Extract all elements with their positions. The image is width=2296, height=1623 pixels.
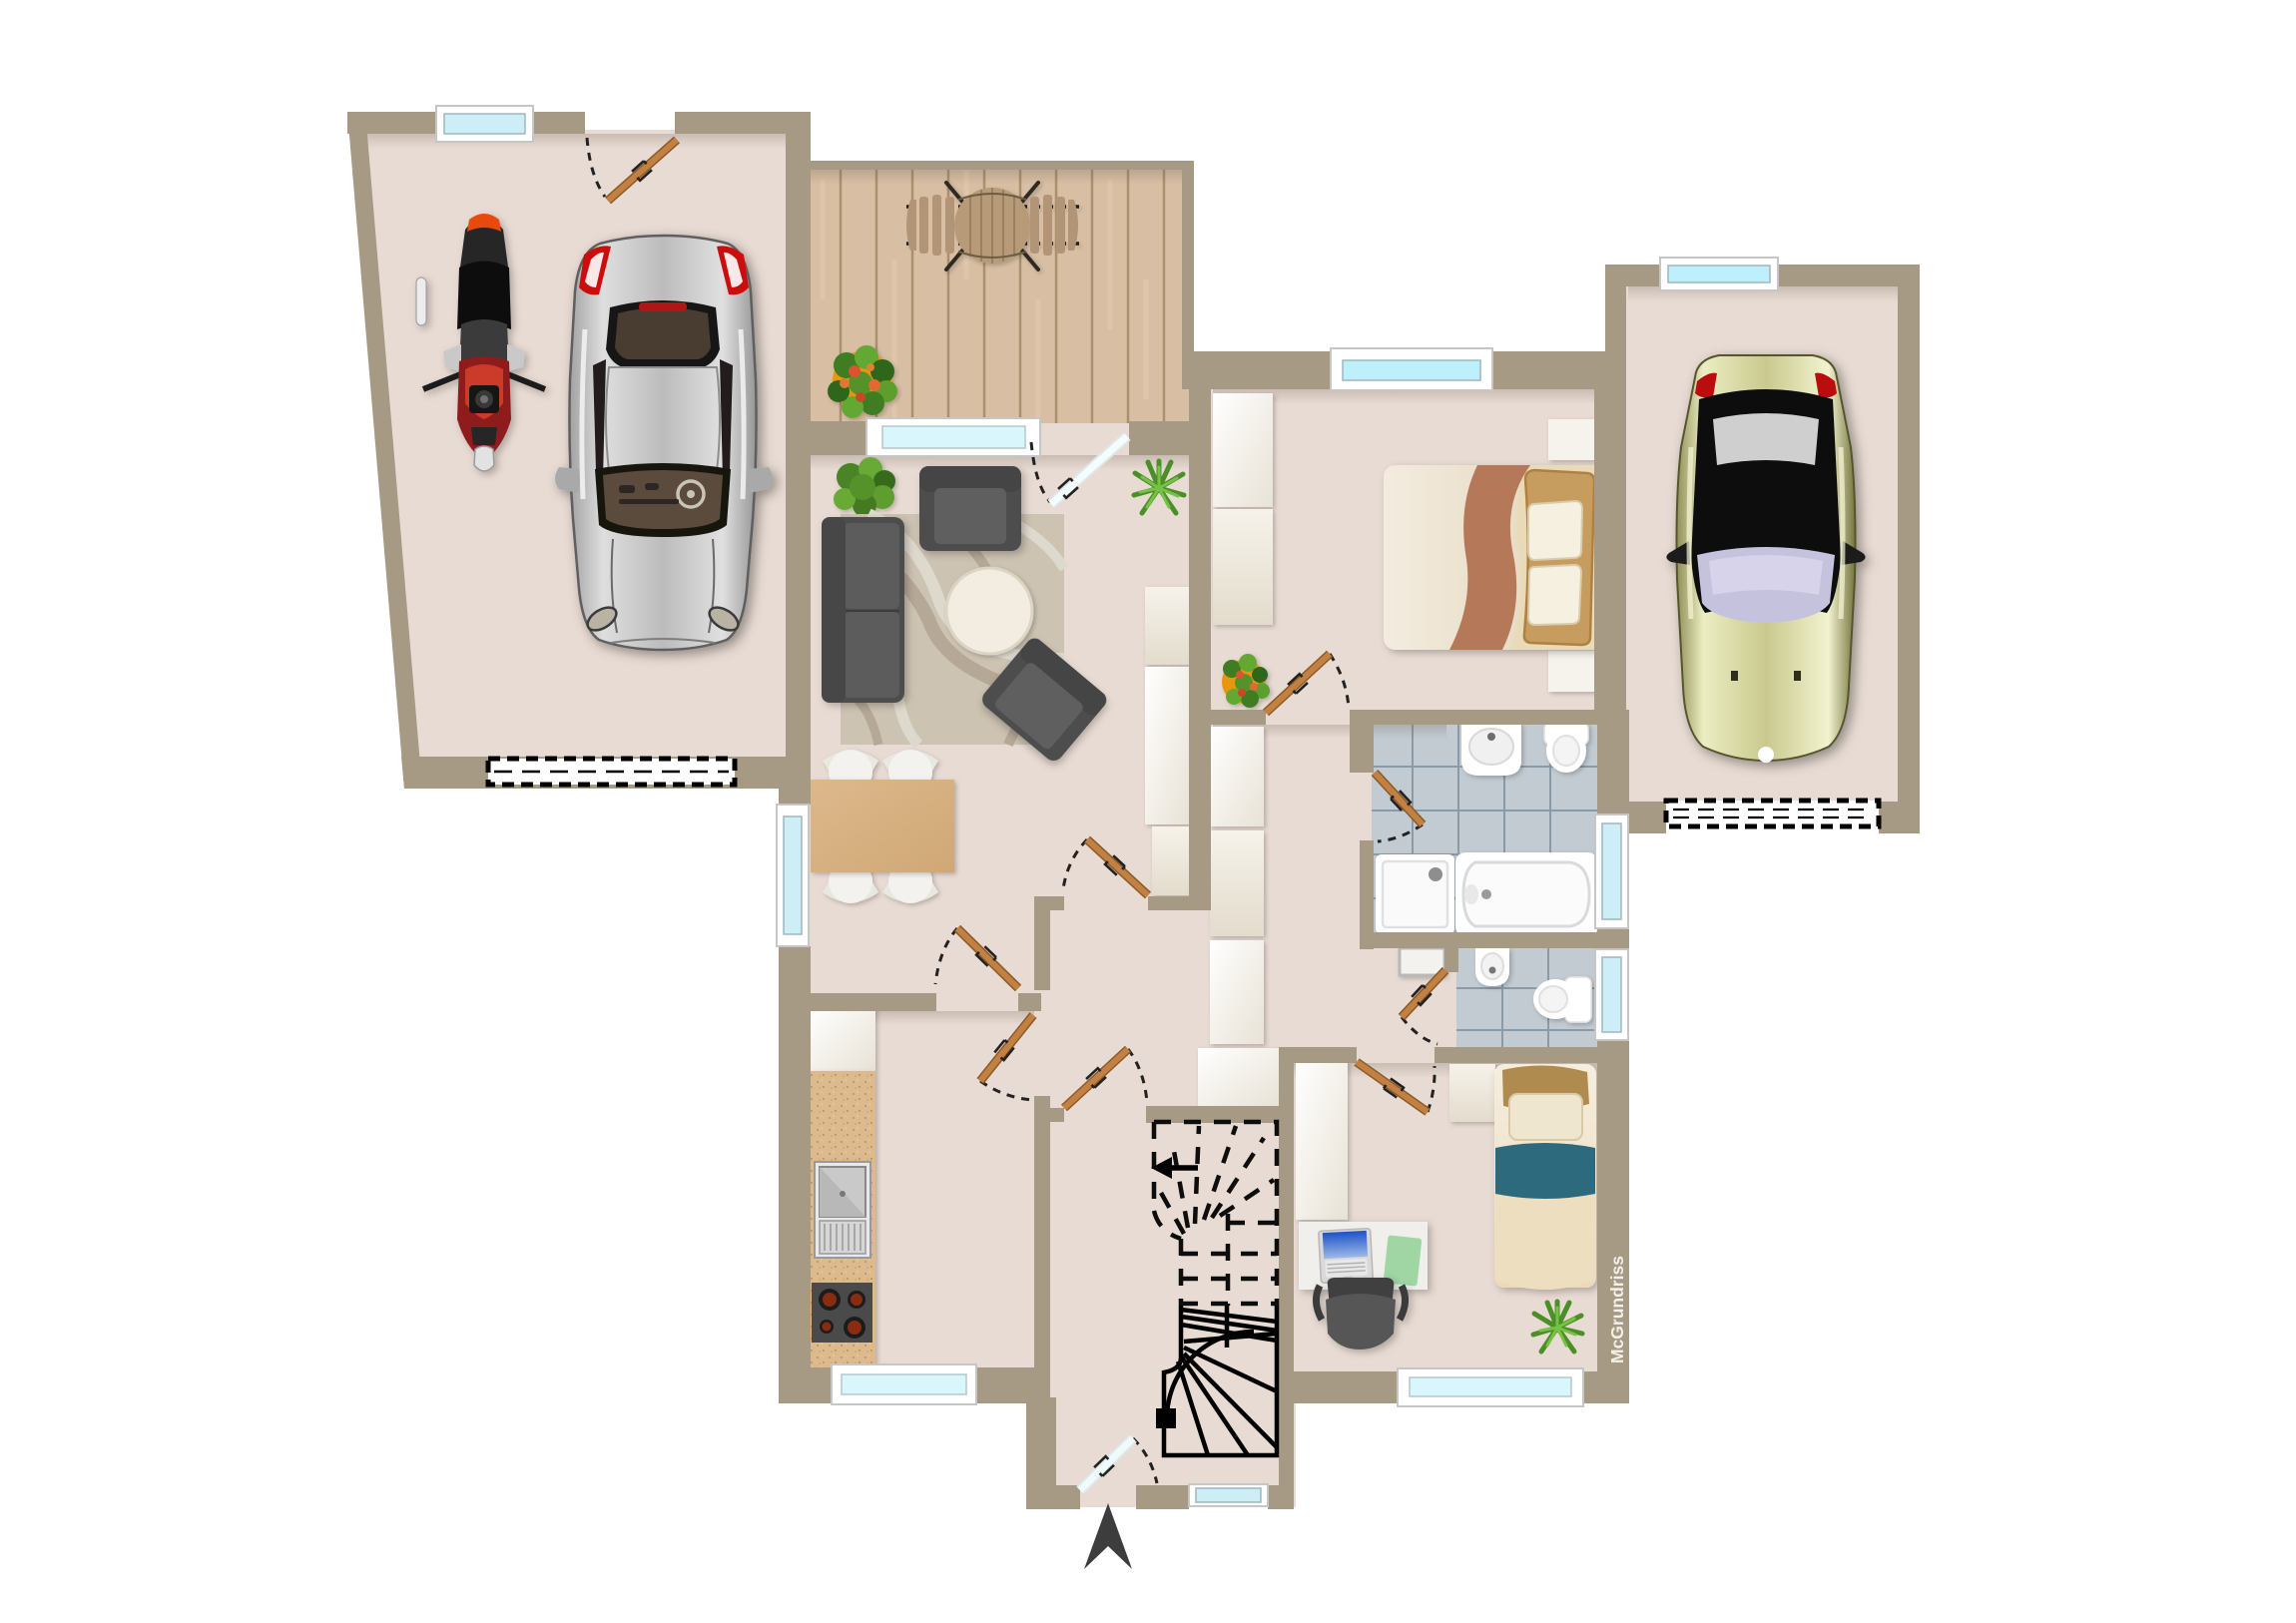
svg-text:McGrundriss: McGrundriss (1607, 1256, 1627, 1363)
